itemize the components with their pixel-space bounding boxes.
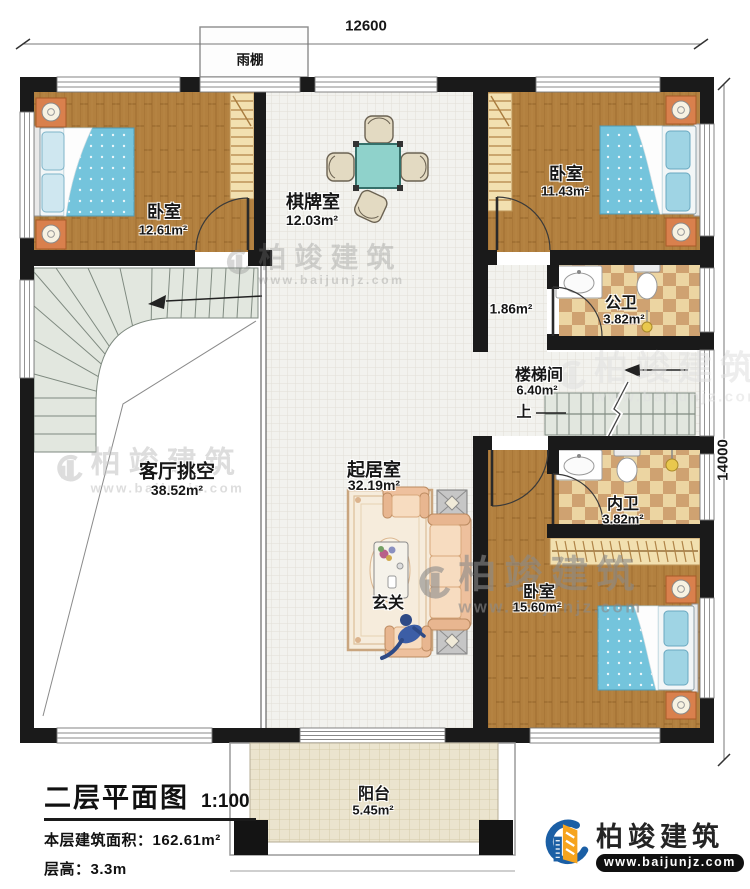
brand-company-name: 柏竣建筑 xyxy=(596,824,744,851)
wardrobe-bedroom2 xyxy=(488,93,512,211)
sofa-set xyxy=(348,487,471,658)
room-area-balcony: 5.45m² xyxy=(352,804,393,817)
brand-logo-icon xyxy=(542,818,590,878)
floor-plan-drawing xyxy=(0,0,750,889)
room-label-balcony: 阳台 xyxy=(358,787,390,803)
room-label-bedroom2: 卧室 xyxy=(549,166,583,183)
room-area-void: 38.52m² xyxy=(151,483,203,497)
title-block: 二层平面图 1:100 本层建筑面积：162.61m² 层高：3.3m xyxy=(44,776,256,879)
area-small-hall: 1.86m² xyxy=(490,302,533,316)
room-area-bedroom1: 12.61m² xyxy=(139,224,187,237)
floor-height-line: 层高：3.3m xyxy=(44,858,256,879)
sofa xyxy=(428,514,471,630)
room-label-void: 客厅挑空 xyxy=(139,463,215,482)
brand-website: www.baijunjz.com xyxy=(596,854,744,872)
room-area-chess: 12.03m² xyxy=(286,213,338,227)
dim-height-label: 14000 xyxy=(716,439,731,481)
bed-bedroom3 xyxy=(598,604,698,692)
side-table xyxy=(437,490,467,516)
room-area-public-bath: 3.82m² xyxy=(603,313,644,326)
room-label-public-bath: 公卫 xyxy=(605,296,637,312)
sliding-door xyxy=(300,728,445,743)
floor-plan-page: 柏竣建筑www.baijunjz.com 柏竣建筑www.baijunjz.co… xyxy=(0,0,750,889)
room-area-bedroom3: 15.60m² xyxy=(513,601,561,614)
chair xyxy=(401,153,428,181)
dim-width-label: 12600 xyxy=(345,19,387,34)
bed-bedroom2 xyxy=(600,124,700,216)
room-label-bedroom1: 卧室 xyxy=(147,204,181,221)
stairs-up-label: 上 xyxy=(516,405,531,420)
room-area-private-bath: 3.82m² xyxy=(602,513,643,526)
bed-bedroom1 xyxy=(34,126,134,216)
coffee-table xyxy=(374,542,408,598)
building-area-line: 本层建筑面积：162.61m² xyxy=(44,829,256,850)
room-area-sitting: 32.19m² xyxy=(348,478,400,492)
closet-bedroom3 xyxy=(550,538,700,565)
room-area-bedroom2: 11.43m² xyxy=(541,185,589,198)
plan-scale: 1:100 xyxy=(201,791,250,813)
room-label-chess: 棋牌室 xyxy=(286,193,340,211)
chair xyxy=(365,116,393,143)
wardrobe-bedroom1 xyxy=(230,93,254,199)
side-table xyxy=(437,628,467,654)
chair xyxy=(327,153,354,181)
room-label-foyer: 玄关 xyxy=(372,596,404,612)
brand-logo: 柏竣建筑 www.baijunjz.com xyxy=(542,818,744,878)
plan-title: 二层平面图 xyxy=(44,776,189,815)
canopy-label: 雨棚 xyxy=(237,53,264,67)
room-area-stairwell: 6.40m² xyxy=(516,384,557,397)
